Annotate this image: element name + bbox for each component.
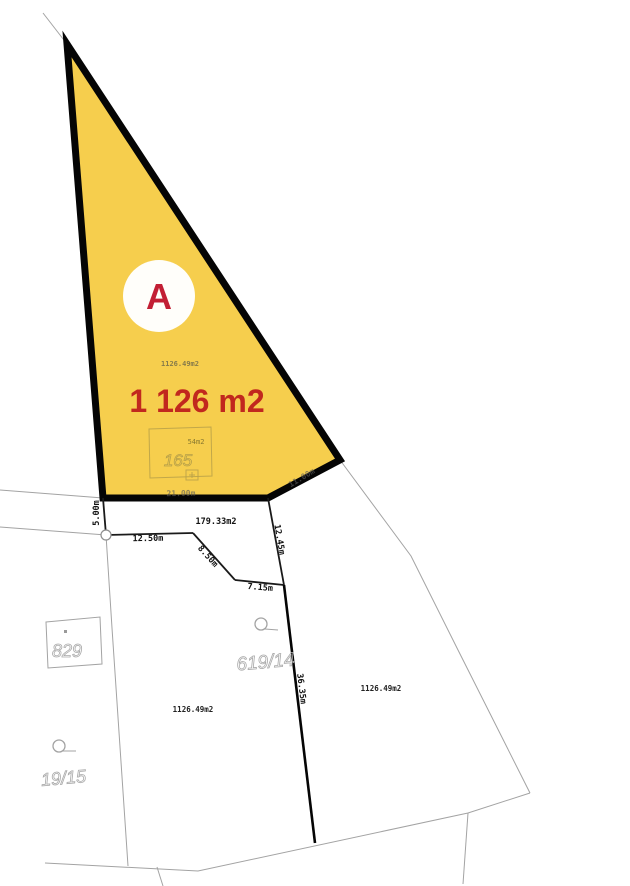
parcel-number-19-15: 19/15: [40, 766, 88, 790]
bottom-stub-line: [157, 867, 163, 886]
plot-a-letter: A: [146, 276, 172, 317]
dim-line-36-35: [284, 585, 315, 843]
map-canvas: 54m2 165 21.00m 11.00m A 1126.49m2 1 126…: [0, 0, 630, 886]
building-829: 829: [46, 617, 102, 668]
dim-7-15: 7.15m: [247, 582, 273, 594]
plot-a-area-small: 1126.49m2: [161, 360, 199, 368]
left-parcel-line-lower: [0, 527, 106, 535]
strip-area-label: 179.33m2: [196, 517, 237, 527]
survey-point-icon: [101, 530, 111, 540]
dim-5-00: 5.00m: [92, 500, 102, 526]
building-number-label: 165: [164, 451, 193, 470]
right-parcel-area: 1126.49m2: [361, 684, 402, 693]
left-parcel-line-upper: [0, 490, 103, 498]
survey-symbol-619-14: [255, 618, 278, 630]
parcel-number-619-14: 619/14: [236, 650, 296, 676]
building-area-label: 54m2: [188, 438, 205, 446]
dim-12-45: 12.45m: [271, 524, 286, 556]
middle-parcel-area: 1126.49m2: [173, 705, 214, 714]
building-829-dot-icon: [64, 630, 67, 633]
cadastral-map: 54m2 165 21.00m 11.00m A 1126.49m2 1 126…: [0, 0, 630, 886]
dim-21-00: 21.00m: [166, 489, 195, 499]
survey-symbol-619-15: [53, 740, 76, 752]
plot-a-polygon: [67, 44, 340, 498]
right-boundary-line: [340, 460, 530, 793]
left-boundary-line: [106, 535, 128, 866]
survey-circle-icon: [255, 618, 267, 630]
bottom-boundary-line: [45, 793, 530, 871]
dim-36-35: 36.35m: [294, 673, 308, 705]
survey-circle-icon: [53, 740, 65, 752]
plot-a-area-big: 1 126 m2: [129, 383, 264, 419]
dim-8-50: 8.50m: [195, 544, 220, 570]
bottom-branch-line: [463, 813, 468, 884]
building-829-number: 829: [52, 641, 82, 661]
survey-tail-icon: [265, 629, 278, 630]
dim-12-50: 12.50m: [133, 534, 164, 545]
